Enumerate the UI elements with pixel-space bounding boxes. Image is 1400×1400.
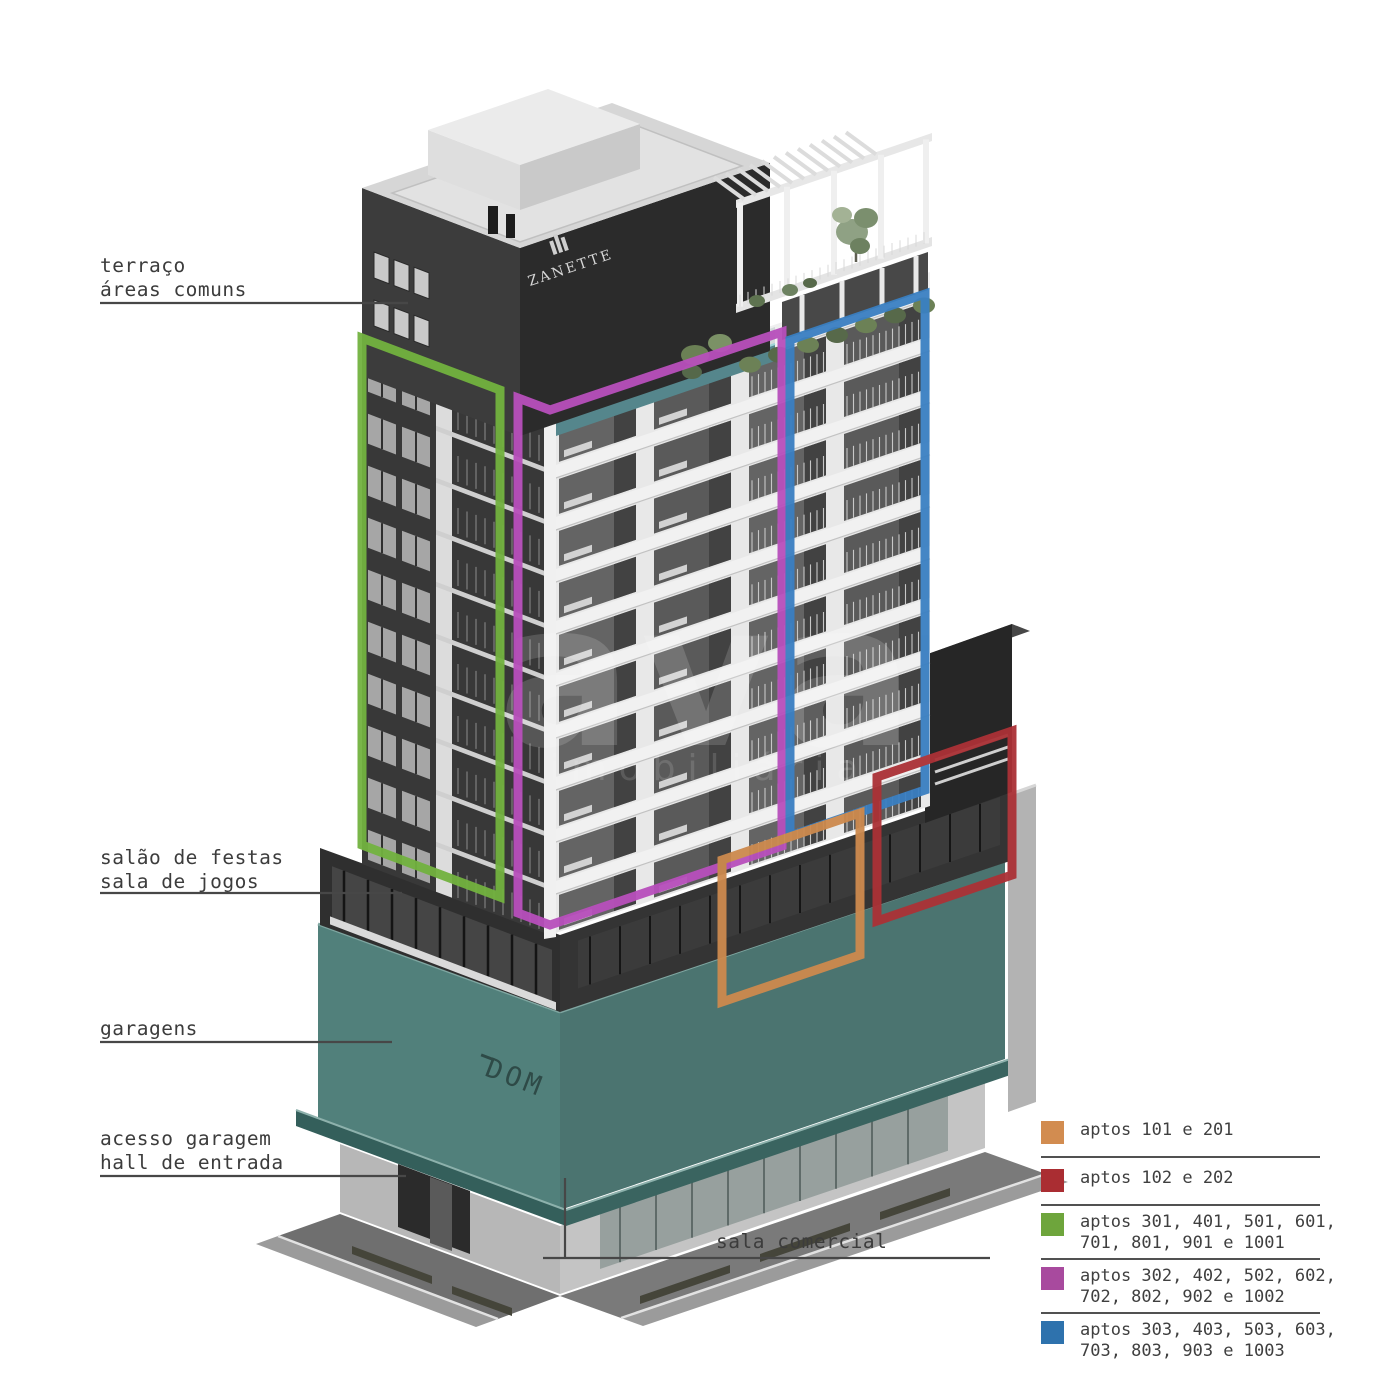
watermark-subtext: imobiliária (550, 748, 871, 789)
legend-label-line: aptos 102 e 202 (1080, 1168, 1234, 1189)
legend-label: aptos 303, 403, 503, 603, 703, 803, 903 … (1080, 1320, 1336, 1362)
legend-swatch-orange (1041, 1121, 1064, 1144)
annotation-line: acesso garagem (100, 1127, 284, 1151)
annotation-line: salão de festas (100, 846, 284, 870)
legend-label-line: 702, 802, 902 e 1002 (1080, 1287, 1336, 1308)
legend-label: aptos 101 e 201 (1080, 1120, 1234, 1141)
annotation-garagens: garagens (100, 1017, 198, 1041)
legend-item-aptos-102-202: aptos 102 e 202 (1041, 1158, 1320, 1204)
annotation-line: áreas comuns (100, 278, 247, 302)
legend-swatch-green (1041, 1213, 1064, 1236)
watermark: ava imobiliária (498, 560, 922, 793)
legend-item-aptos-301-1001: aptos 301, 401, 501, 601, 701, 801, 901 … (1041, 1206, 1320, 1258)
legend-item-aptos-101-201: aptos 101 e 201 (1041, 1110, 1320, 1156)
legend-label-line: aptos 101 e 201 (1080, 1120, 1234, 1141)
annotation-line: terraço (100, 254, 247, 278)
annotation-line: hall de entrada (100, 1151, 284, 1175)
legend-label-line: aptos 302, 402, 502, 602, (1080, 1266, 1336, 1287)
annotation-line: sala comercial (716, 1230, 887, 1254)
legend-label: aptos 301, 401, 501, 601, 701, 801, 901 … (1080, 1212, 1336, 1254)
legend-label-line: 703, 803, 903 e 1003 (1080, 1341, 1336, 1362)
legend-label-line: aptos 301, 401, 501, 601, (1080, 1212, 1336, 1233)
architectural-diagram-page: DOM (0, 0, 1400, 1400)
legend-swatch-red (1041, 1169, 1064, 1192)
legend-swatch-blue (1041, 1321, 1064, 1344)
legend-label-line: 701, 801, 901 e 1001 (1080, 1233, 1336, 1254)
annotation-line: garagens (100, 1017, 198, 1041)
legend-item-aptos-303-1003: aptos 303, 403, 503, 603, 703, 803, 903 … (1041, 1314, 1320, 1366)
legend-label-line: aptos 303, 403, 503, 603, (1080, 1320, 1336, 1341)
legend-label: aptos 102 e 202 (1080, 1168, 1234, 1189)
legend: aptos 101 e 201 aptos 102 e 202 aptos 30… (1041, 1110, 1320, 1366)
annotation-acesso: acesso garagem hall de entrada (100, 1127, 284, 1175)
legend-label: aptos 302, 402, 502, 602, 702, 802, 902 … (1080, 1266, 1336, 1308)
annotation-line: sala de jogos (100, 870, 284, 894)
legend-swatch-purple (1041, 1267, 1064, 1290)
chimney (506, 214, 515, 238)
annotation-terraco: terraço áreas comuns (100, 254, 247, 302)
annotation-sala-comercial: sala comercial (716, 1230, 887, 1254)
legend-item-aptos-302-1002: aptos 302, 402, 502, 602, 702, 802, 902 … (1041, 1260, 1320, 1312)
annotation-salao: salão de festas sala de jogos (100, 846, 284, 894)
chimney (488, 206, 498, 234)
